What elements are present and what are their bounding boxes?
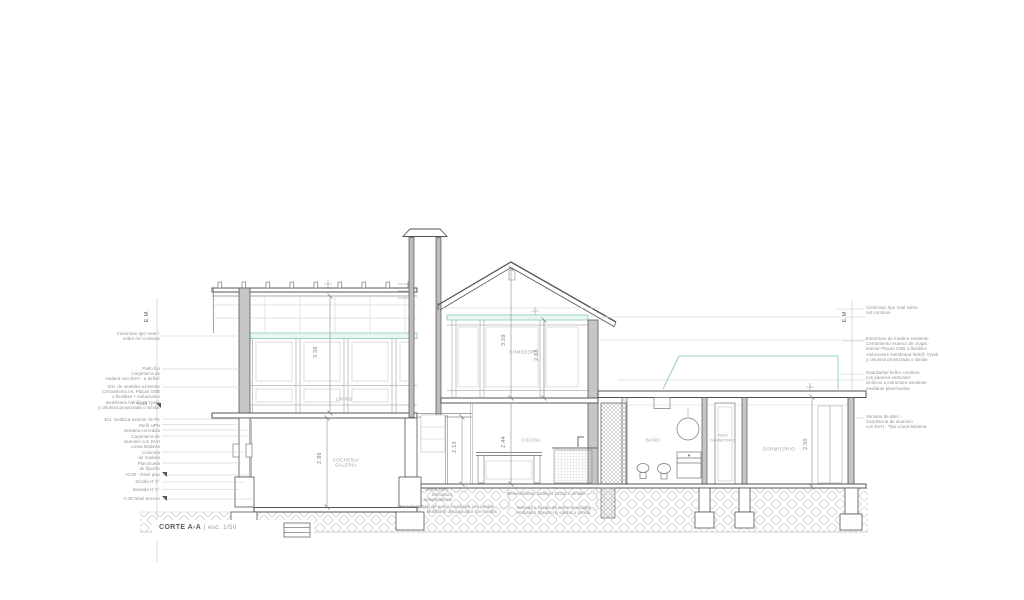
leader-lines (162, 309, 864, 510)
drawing-title: CORTE A-A | esc. 1/50 (159, 524, 237, 531)
rafter-tails (218, 282, 412, 288)
annotation-bottom-oven: Horno exist. - estructura independiente (424, 487, 452, 503)
mid-floor-slab (212, 413, 417, 418)
annotation-left-floor-level: +0.90 - Nivel piso (125, 472, 160, 477)
annotation-left-sliding-window: Ventana corrediza (124, 428, 160, 433)
axis-label-left: E.M. (144, 310, 150, 323)
annotation-left-upn: Perfil UPN (139, 423, 160, 428)
dim-living-height: 3.56 (313, 346, 319, 358)
dim-cocina-height: 2.44 (501, 436, 507, 448)
room-label-cocina: COCINA (521, 437, 540, 442)
section-drawing (0, 0, 1024, 600)
bathroom-fixtures (637, 407, 701, 479)
toilet-icon (658, 464, 671, 480)
bidet-icon (637, 464, 649, 479)
room-label-dormitorio: DORMITORIO (763, 446, 795, 451)
left-building (212, 280, 417, 506)
annotation-right-guardrail: Guardarriel fieltro continuo con paneles… (866, 370, 927, 391)
wardrobe (818, 406, 842, 483)
dim-dormitorio-height: 2.50 (803, 438, 809, 450)
drawing-title-scale: esc. 1/50 (208, 524, 237, 531)
room-label-living: LIVING (336, 396, 353, 401)
annotation-left-fixing-plate: Planchuela de fijación (138, 461, 160, 471)
dim-cochera-height: 2.86 (317, 452, 323, 464)
annotation-left-mesada: Mesada H°A° (133, 487, 160, 492)
annotation-right-wood-structure: Estructura de madera existente Cerramien… (866, 336, 938, 362)
annotation-bottom-tiles: Revestimiento azulejos 15x15 o similar (507, 491, 585, 496)
teal-volume-outline (663, 356, 838, 389)
room-label-paso: PASO DORMITORIO (710, 434, 735, 445)
annotation-left-terrain-level: -0.30 Nivel terreno (123, 496, 160, 501)
dim-comedor-total-height: 3.59 (501, 334, 507, 346)
left-wall-cut (239, 288, 250, 413)
annotation-left-fixed-pane: Paño fijo Carpintería de madera con DVH … (105, 366, 160, 382)
scale-symbol (284, 523, 310, 537)
main-floor-slab (418, 484, 866, 488)
comedor-floor-slab (441, 398, 598, 403)
room-label-bano: BAÑO (646, 437, 660, 442)
right-wing (598, 317, 866, 487)
dim-comedor-height: 2.68 (534, 349, 540, 361)
annotation-right-ceiling: Cielorraso tipo Vual sobre riel continuo (866, 305, 918, 315)
kitchen-island (476, 453, 542, 484)
faucet-icon (578, 437, 584, 447)
drawing-title-name: CORTE A-A (159, 524, 201, 531)
annotation-left-zocalo: Zócalo H°A° (135, 479, 160, 484)
comedor-ceiling-band (447, 315, 588, 320)
living-ceiling-band (246, 333, 417, 339)
comedor-windows (447, 320, 588, 398)
dim-pasillo-height: 2.13 (452, 441, 458, 453)
flat-roof-slab (598, 391, 866, 398)
mirror-icon (677, 418, 699, 440)
annotation-left-steel-structure: Est. metálica exterior de PA (105, 417, 161, 422)
living-windows (250, 339, 417, 414)
room-label-cochera: COCHERA/ GALERÍA (333, 458, 359, 469)
annotation-bottom-worktable: Mesa de trabajo de acero inoxidable con … (398, 504, 497, 514)
annotation-left-wood-column: Columna de madera (139, 450, 160, 460)
drawing-title-separator: | (204, 524, 206, 531)
annotation-right-window: Ventana de abrir - Carpintería de alumin… (866, 414, 927, 430)
section-drawing-canvas: LIVING COCHERA/ GALERÍA COMEDOR COCINA B… (0, 0, 1024, 600)
annotation-left-wall-buildup: Est. de muebles existente Cerramiento in… (98, 384, 160, 410)
annotation-bottom-countertop: Mesada y zócalo de acero inoxidable - Mo… (517, 505, 594, 515)
room-label-comedor: COMEDOR (509, 349, 535, 354)
axis-label-right: E.M. (842, 310, 848, 323)
annotation-left-ceiling: Cielorraso tipo Vual + sobre riel contin… (117, 331, 160, 341)
cochera-floor-slab (254, 508, 417, 513)
annotation-left-alu-carpentry: Carpintería de aluminio con DVH Línea Mó… (124, 434, 160, 450)
annotation-left-level-410: +4.10 (136, 401, 147, 406)
